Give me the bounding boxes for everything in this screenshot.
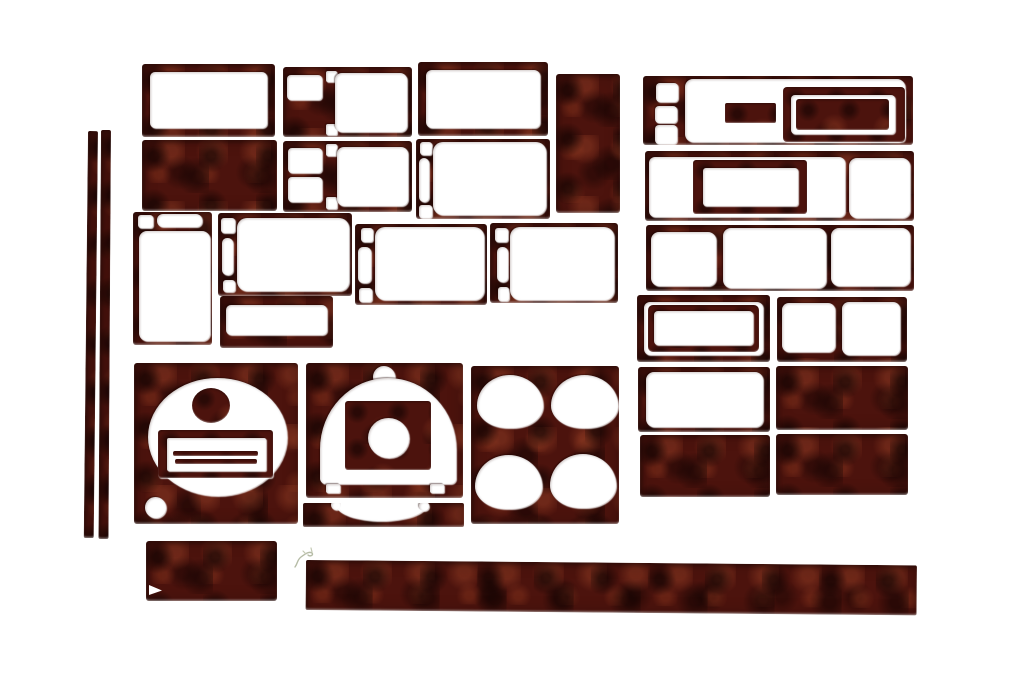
cluster-lower-strip (303, 503, 464, 527)
button-opening (655, 106, 677, 123)
dual-opening-frame (777, 297, 907, 362)
opening (337, 147, 408, 206)
slot (361, 228, 373, 242)
slot (358, 247, 371, 283)
opening (782, 303, 835, 352)
opening (139, 231, 210, 341)
slot (157, 214, 202, 227)
button-opening (655, 125, 677, 144)
cup-cutout (477, 375, 543, 428)
opening (375, 227, 484, 300)
top-disc (192, 388, 230, 423)
reflection-notch (149, 585, 162, 595)
pillar-strip-left (84, 131, 98, 538)
slot (326, 144, 337, 156)
blank-plate-vertical (556, 74, 620, 213)
gauge-pod-frame (133, 212, 212, 345)
double-bezel-frame (637, 295, 770, 362)
scratch-mark (291, 545, 321, 573)
opening (510, 227, 614, 300)
slot (223, 280, 235, 292)
vent-slat (173, 451, 258, 456)
speedometer-panel (134, 363, 298, 524)
opening (288, 148, 322, 173)
opening (831, 228, 910, 286)
cup-cutout (475, 455, 542, 509)
blank-plate-small (146, 541, 277, 601)
opening (433, 142, 546, 215)
arch-cutout (336, 503, 426, 521)
button-opening (656, 83, 678, 102)
inset-block (725, 103, 776, 123)
cluster-strip-frame (643, 76, 913, 145)
opening (849, 158, 910, 218)
display-bezel (783, 87, 905, 142)
slot (419, 158, 429, 202)
slot (497, 247, 508, 282)
cluster-hood-panel (306, 363, 463, 498)
cup-cutout (550, 454, 616, 508)
slot (419, 205, 432, 218)
window-switch-frame-a (218, 213, 352, 296)
slot (221, 218, 235, 233)
slot (326, 197, 337, 209)
slot (495, 228, 508, 242)
floating-radio-frame (693, 160, 807, 214)
foot-notch (326, 484, 340, 493)
round-hole (368, 418, 409, 458)
slot (138, 215, 153, 228)
slot (420, 142, 432, 155)
small-display-frame (220, 296, 333, 348)
cupholder-panel (471, 366, 619, 524)
opening (287, 75, 322, 100)
opening (288, 177, 322, 202)
bezel-center (796, 99, 889, 130)
window-switch-frame-b (355, 224, 487, 305)
blank-plate-b (640, 435, 770, 497)
bezel-gap (791, 95, 895, 134)
blank-plate-c (776, 434, 908, 495)
opening (842, 302, 900, 355)
vent-slat (175, 459, 257, 464)
radio-surround-frame (645, 151, 914, 221)
slot (359, 288, 372, 302)
triple-opening-frame (646, 225, 914, 291)
opening (646, 372, 763, 427)
opening (150, 72, 267, 128)
hvac-frame (416, 139, 550, 219)
opening (226, 305, 327, 335)
window-switch-frame-c (490, 223, 618, 303)
inner-frame (648, 305, 759, 352)
switch-panel-lower (283, 141, 412, 212)
center-block (345, 401, 431, 470)
opening (426, 70, 540, 128)
opening (335, 73, 407, 132)
pillar-strip-right (99, 130, 111, 539)
switch-panel-upper (283, 67, 412, 137)
notch (419, 503, 429, 511)
sill-strip-long (306, 560, 917, 615)
opening (237, 218, 349, 291)
opening (723, 228, 826, 288)
vent-frame-top (418, 62, 548, 136)
blank-plate-wide (142, 140, 277, 211)
trim-kit-photo (0, 0, 1024, 681)
opening (703, 168, 798, 206)
blank-plate-a (776, 366, 908, 430)
vent-block (158, 430, 273, 478)
cup-cutout (551, 375, 618, 428)
foot-notch (430, 484, 444, 493)
opening (654, 311, 753, 345)
single-opening-frame (638, 367, 770, 432)
vent-window (167, 438, 266, 471)
slot (498, 287, 509, 301)
corner-hole (145, 497, 166, 518)
bezel-gap (644, 302, 763, 355)
slot (222, 238, 233, 275)
opening (651, 232, 716, 286)
frame-top-left (142, 64, 275, 137)
